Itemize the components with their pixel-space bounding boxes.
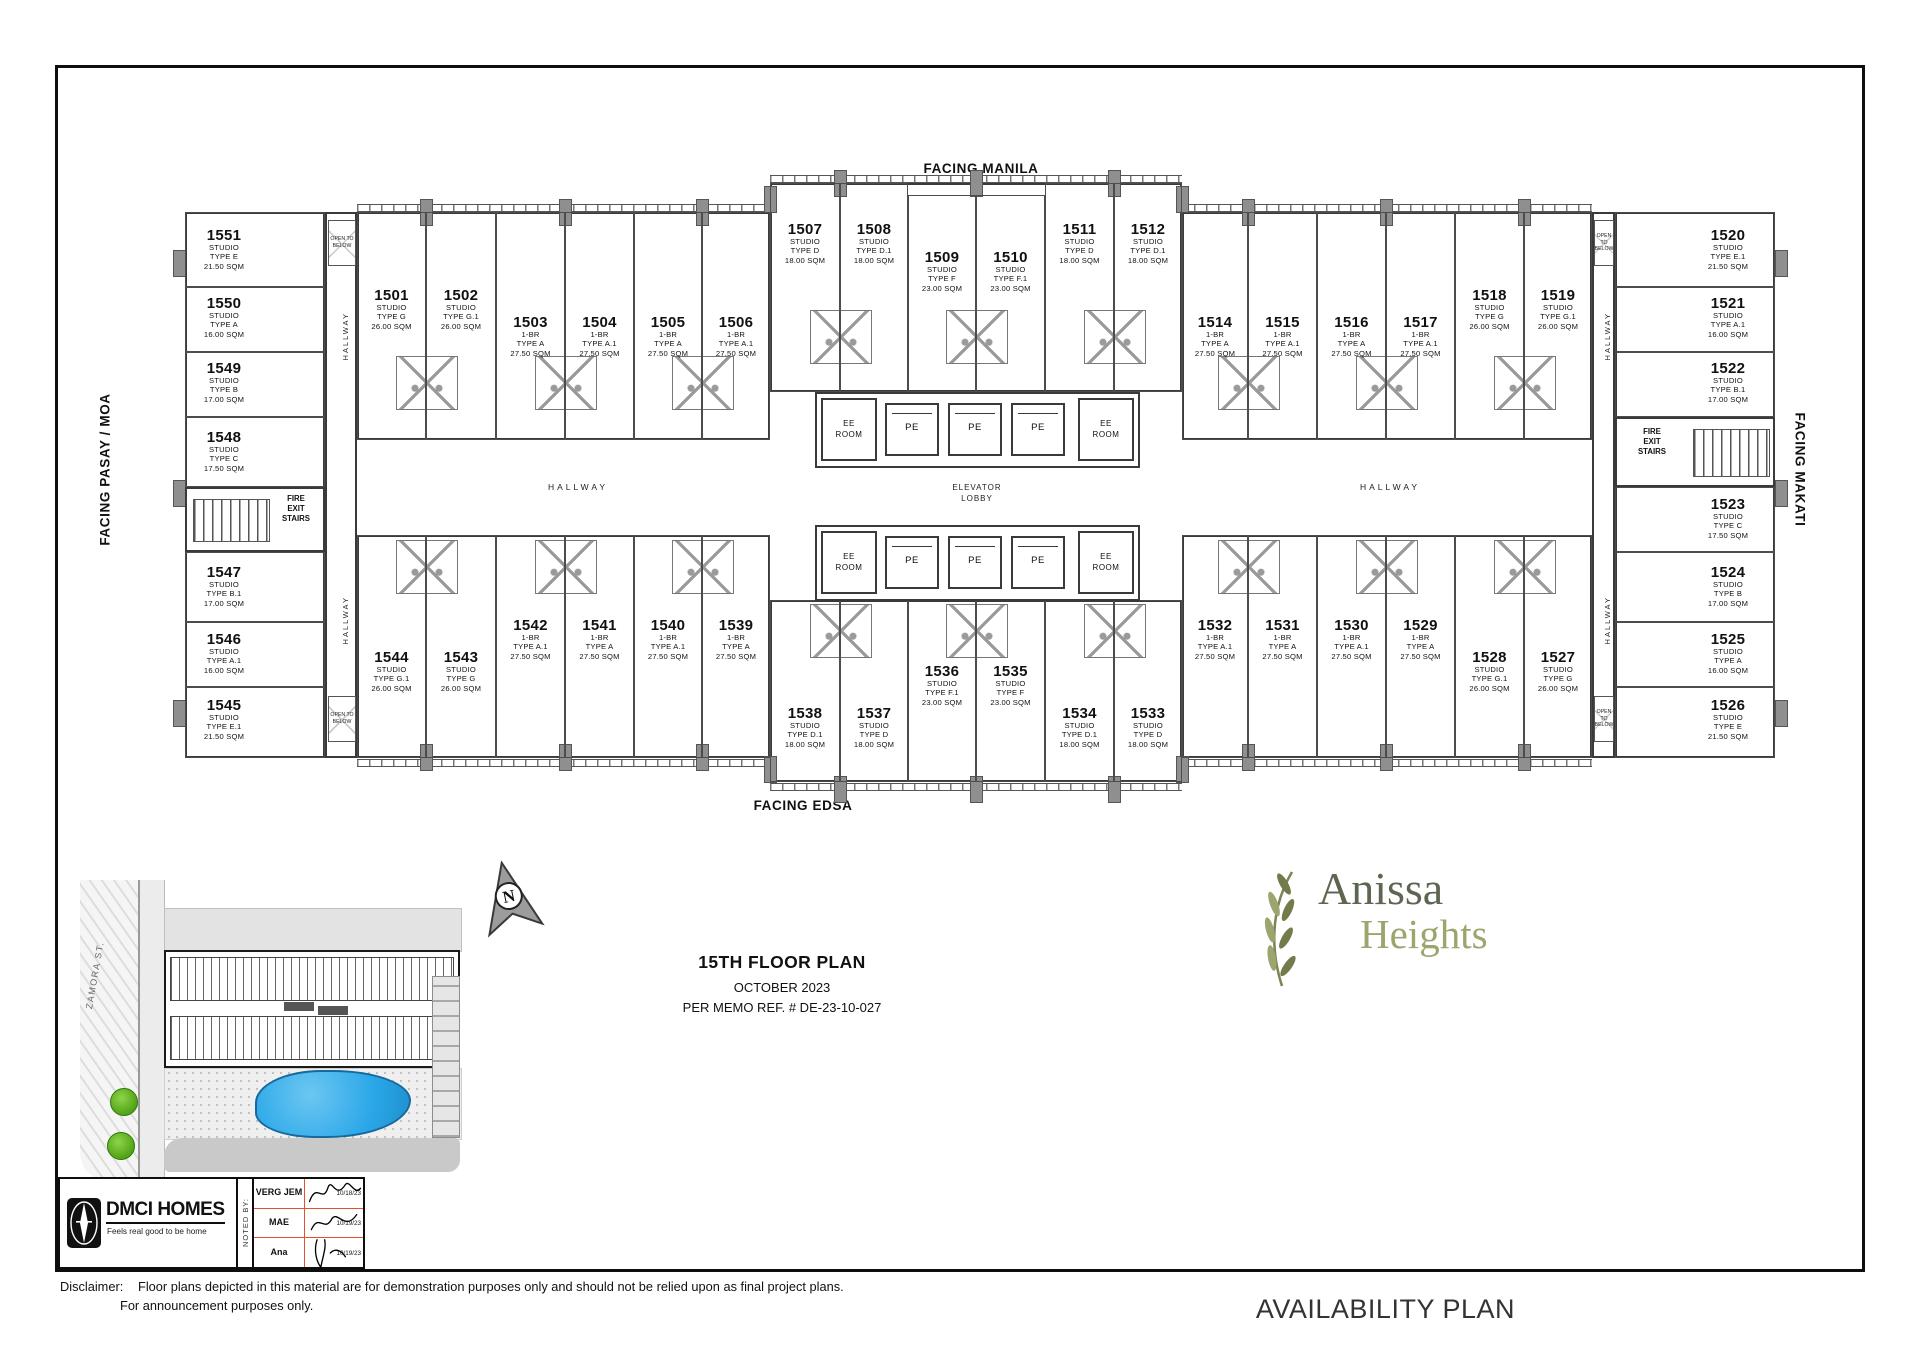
unit-label-1541: 15411-BRTYPE A27.50 SQM [561, 618, 639, 661]
unit-type-line: 18.00 SQM [1041, 256, 1119, 265]
unit-number: 1528 [1451, 650, 1529, 665]
unit-type-line: TYPE A.1 [561, 339, 639, 348]
unit-type-line: TYPE A [1382, 642, 1460, 651]
unit-type-line: 18.00 SQM [1109, 740, 1187, 749]
unit-type-line: 27.50 SQM [629, 349, 707, 358]
unit-label-1536: 1536STUDIOTYPE F.123.00 SQM [903, 664, 981, 707]
pe-label: PE [887, 422, 937, 433]
unit-type-line: 18.00 SQM [766, 256, 844, 265]
pe-label: PE [1013, 422, 1063, 433]
unit-label-1548: 1548STUDIOTYPE C17.50 SQM [185, 430, 263, 473]
unit-number: 1512 [1109, 222, 1187, 237]
unit-type-line: 26.00 SQM [353, 684, 431, 693]
title-block: DMCI HOMES Feels real good to be home NO… [58, 1177, 365, 1269]
unit-number: 1519 [1519, 288, 1597, 303]
passenger-elevator: PE [1011, 403, 1065, 456]
unit-number: 1547 [185, 565, 263, 580]
unit-type-line: TYPE D [835, 730, 913, 739]
unit-label-1505: 15051-BRTYPE A27.50 SQM [629, 315, 707, 358]
unit-type-line: TYPE A.1 [1689, 320, 1767, 329]
hallway-label: HALLWAY [1360, 482, 1420, 492]
open-to-below-label: OPEN TO BELOW [329, 697, 355, 741]
unit-number: 1542 [492, 618, 570, 633]
hallway-label: HALLWAY [548, 482, 608, 492]
unit-type-line: 18.00 SQM [766, 740, 844, 749]
unit-type-line: STUDIO [972, 265, 1050, 274]
unit-label-1526: 1526STUDIOTYPE E21.50 SQM [1689, 698, 1767, 741]
signatory-name: MAE [254, 1209, 305, 1238]
unit-type-line: TYPE A.1 [629, 642, 707, 651]
unit-type-line: STUDIO [1109, 237, 1187, 246]
open-to-below: OPEN TO BELOW [1594, 220, 1614, 266]
unit-type-line: STUDIO [766, 237, 844, 246]
unit-type-line: STUDIO [353, 303, 431, 312]
unit-label-1507: 1507STUDIOTYPE D18.00 SQM [766, 222, 844, 265]
unit-type-line: STUDIO [1689, 512, 1767, 521]
unit-type-line: TYPE F.1 [903, 688, 981, 697]
unit-type-line: 27.50 SQM [1313, 652, 1391, 661]
unit-type-line: TYPE A [1176, 339, 1254, 348]
unit-number: 1533 [1109, 706, 1187, 721]
unit-number: 1521 [1689, 296, 1767, 311]
ee-room: EEROOM [821, 531, 877, 594]
unit-type-line: TYPE A.1 [1313, 642, 1391, 651]
unit-type-line: STUDIO [185, 445, 263, 454]
unit-number: 1501 [353, 288, 431, 303]
unit-1533 [1114, 600, 1182, 782]
ee-room-label: EE [843, 419, 855, 429]
unit-type-line: 21.50 SQM [185, 732, 263, 741]
unit-type-line: 27.50 SQM [561, 349, 639, 358]
unit-type-line: 21.50 SQM [1689, 732, 1767, 741]
unit-type-line: TYPE D [1041, 246, 1119, 255]
unit-type-line: 27.50 SQM [1313, 349, 1391, 358]
ee-room-label: ROOM [1093, 563, 1120, 573]
unit-number: 1511 [1041, 222, 1119, 237]
unit-1509 [908, 195, 976, 392]
unit-type-line: TYPE D [1109, 730, 1187, 739]
unit-type-line: 27.50 SQM [629, 652, 707, 661]
unit-type-line: 16.00 SQM [185, 666, 263, 675]
unit-label-1509: 1509STUDIOTYPE F23.00 SQM [903, 250, 981, 293]
ee-room: EEROOM [821, 398, 877, 461]
unit-type-line: TYPE C [1689, 521, 1767, 530]
unit-type-line: STUDIO [1041, 721, 1119, 730]
unit-type-line: TYPE A.1 [1382, 339, 1460, 348]
unit-type-line: TYPE A [697, 642, 775, 651]
site-elevator-core [284, 1002, 314, 1011]
ee-room: EEROOM [1078, 398, 1134, 461]
signatory-date: 10/19/23 [336, 1250, 361, 1257]
unit-type-line: 23.00 SQM [972, 284, 1050, 293]
unit-type-line: 26.00 SQM [1451, 322, 1529, 331]
unit-label-1524: 1524STUDIOTYPE B17.00 SQM [1689, 565, 1767, 608]
unit-number: 1545 [185, 698, 263, 713]
unit-type-line: TYPE B.1 [185, 589, 263, 598]
unit-type-line: STUDIO [1689, 376, 1767, 385]
unit-number: 1516 [1313, 315, 1391, 330]
unit-label-1512: 1512STUDIOTYPE D.118.00 SQM [1109, 222, 1187, 265]
column-pier [970, 170, 983, 197]
memo-reference: PER MEMO REF. # DE-23-10-027 [632, 1000, 932, 1015]
availability-plan-label: AVAILABILITY PLAN [1200, 1294, 1515, 1325]
unit-type-line: TYPE A [1244, 642, 1322, 651]
unit-number: 1532 [1176, 618, 1254, 633]
leaf-branch-icon [1248, 866, 1318, 991]
column-pier [1775, 250, 1788, 277]
ee-room-label: ROOM [836, 430, 863, 440]
column-pier [1775, 480, 1788, 507]
unit-label-1522: 1522STUDIOTYPE B.117.00 SQM [1689, 361, 1767, 404]
unit-type-line: 17.00 SQM [1689, 395, 1767, 404]
unit-type-line: STUDIO [185, 243, 263, 252]
unit-type-line: 18.00 SQM [835, 256, 913, 265]
unit-label-1549: 1549STUDIOTYPE B17.00 SQM [185, 361, 263, 404]
disclaimer-label: Disclaimer: [60, 1279, 138, 1294]
availability-plan-page: FACING MANILA FACING EDSA FACING PASAY /… [0, 0, 1920, 1358]
elevator-door [955, 540, 995, 547]
unit-type-line: STUDIO [1689, 311, 1767, 320]
stairs-label-line: STAIRS [1622, 447, 1682, 457]
unit-type-line: TYPE D.1 [1109, 246, 1187, 255]
unit-type-line: 26.00 SQM [1451, 684, 1529, 693]
unit-type-line: 23.00 SQM [972, 698, 1050, 707]
unit-1527 [1524, 535, 1592, 758]
unit-type-line: 18.00 SQM [1109, 256, 1187, 265]
unit-type-line: STUDIO [1689, 580, 1767, 589]
unit-type-line: STUDIO [835, 237, 913, 246]
stairs-label-line: STAIRS [266, 514, 326, 524]
column-pier [173, 700, 186, 727]
unit-label-1529: 15291-BRTYPE A27.50 SQM [1382, 618, 1460, 661]
ee-room-label: EE [1100, 419, 1112, 429]
elevator-lobby-label: ELEVATORLOBBY [907, 483, 1047, 505]
unit-type-line: TYPE A.1 [1176, 642, 1254, 651]
unit-label-1514: 15141-BRTYPE A27.50 SQM [1176, 315, 1254, 358]
signatory-name: Ana [254, 1238, 305, 1267]
pe-label: PE [887, 555, 937, 566]
unit-type-line: STUDIO [1689, 713, 1767, 722]
unit-type-line: TYPE F [972, 688, 1050, 697]
unit-1510 [976, 195, 1045, 392]
dmci-logo-block: DMCI HOMES Feels real good to be home [60, 1179, 238, 1267]
tree-icon [107, 1132, 135, 1160]
brand-name-line2: Heights [1360, 914, 1488, 955]
unit-label-1550: 1550STUDIOTYPE A16.00 SQM [185, 296, 263, 339]
unit-type-line: TYPE B [1689, 589, 1767, 598]
noted-by-strip: NOTED BY: [238, 1179, 254, 1267]
unit-type-line: STUDIO [1519, 303, 1597, 312]
unit-type-line: TYPE A [629, 339, 707, 348]
unit-type-line: TYPE G [353, 312, 431, 321]
unit-number: 1514 [1176, 315, 1254, 330]
sheet-title: 15TH FLOOR PLAN OCTOBER 2023 PER MEMO RE… [632, 952, 932, 1015]
unit-type-line: STUDIO [903, 265, 981, 274]
unit-type-line: TYPE G [422, 674, 500, 683]
dmci-brand-name: DMCI HOMES [106, 1199, 225, 1224]
unit-label-1518: 1518STUDIOTYPE G26.00 SQM [1451, 288, 1529, 331]
open-to-below: OPEN TO BELOW [328, 220, 356, 266]
pe-label: PE [1013, 555, 1063, 566]
unit-type-line: 1-BR [629, 330, 707, 339]
unit-type-line: 1-BR [1176, 633, 1254, 642]
passenger-elevator: PE [948, 536, 1002, 589]
unit-1528 [1455, 535, 1524, 758]
unit-number: 1535 [972, 664, 1050, 679]
unit-type-line: 17.50 SQM [185, 464, 263, 473]
signature-cell: 10/18/23 [305, 1179, 363, 1208]
stairs-label-line: FIRE [266, 494, 326, 504]
ee-room: EEROOM [1078, 531, 1134, 594]
unit-type-line: TYPE G.1 [1519, 312, 1597, 321]
unit-type-line: 1-BR [1313, 633, 1391, 642]
unit-type-line: STUDIO [835, 721, 913, 730]
unit-type-line: 1-BR [561, 633, 639, 642]
pe-label: PE [950, 422, 1000, 433]
unit-type-line: STUDIO [422, 665, 500, 674]
unit-1537 [840, 600, 908, 782]
open-to-below-label: OPEN TO BELOW [1595, 221, 1613, 265]
unit-type-line: 26.00 SQM [422, 684, 500, 693]
unit-label-1503: 15031-BRTYPE A27.50 SQM [492, 315, 570, 358]
column-pier [173, 250, 186, 277]
unit-type-line: TYPE G [1451, 312, 1529, 321]
elevator-door [892, 540, 932, 547]
unit-type-line: TYPE D.1 [835, 246, 913, 255]
elevator-door [1018, 407, 1058, 414]
unit-number: 1523 [1689, 497, 1767, 512]
site-driveway [164, 908, 462, 952]
unit-label-1510: 1510STUDIOTYPE F.123.00 SQM [972, 250, 1050, 293]
unit-type-line: 16.00 SQM [185, 330, 263, 339]
signatory-row: MAE10/19/23 [254, 1209, 363, 1239]
open-to-below: OPEN TO BELOW [328, 696, 356, 742]
unit-type-line: TYPE C [185, 454, 263, 463]
unit-type-line: STUDIO [1689, 647, 1767, 656]
unit-label-1538: 1538STUDIOTYPE D.118.00 SQM [766, 706, 844, 749]
unit-type-line: TYPE G.1 [1451, 674, 1529, 683]
ee-room-label: ROOM [1093, 430, 1120, 440]
unit-label-1515: 15151-BRTYPE A.127.50 SQM [1244, 315, 1322, 358]
unit-label-1508: 1508STUDIOTYPE D.118.00 SQM [835, 222, 913, 265]
unit-type-line: 1-BR [1382, 633, 1460, 642]
unit-type-line: 1-BR [492, 633, 570, 642]
unit-number: 1549 [185, 361, 263, 376]
signatory-row: VERG JEM10/18/23 [254, 1179, 363, 1209]
site-unit-band [170, 957, 454, 1001]
unit-number: 1541 [561, 618, 639, 633]
unit-type-line: TYPE A [492, 339, 570, 348]
unit-type-line: TYPE F.1 [972, 274, 1050, 283]
open-to-below-label: OPEN TO BELOW [1595, 697, 1613, 741]
unit-type-line: STUDIO [1451, 665, 1529, 674]
unit-type-line: 1-BR [629, 633, 707, 642]
unit-type-line: STUDIO [185, 376, 263, 385]
unit-type-line: 23.00 SQM [903, 698, 981, 707]
unit-type-line: TYPE G.1 [353, 674, 431, 683]
unit-number: 1527 [1519, 650, 1597, 665]
plan-month: OCTOBER 2023 [632, 980, 932, 995]
unit-label-1545: 1545STUDIOTYPE E.121.50 SQM [185, 698, 263, 741]
unit-label-1506: 15061-BRTYPE A.127.50 SQM [697, 315, 775, 358]
unit-type-line: STUDIO [1519, 665, 1597, 674]
unit-1507 [770, 183, 840, 392]
unit-label-1520: 1520STUDIOTYPE E.121.50 SQM [1689, 228, 1767, 271]
unit-1544 [357, 535, 426, 758]
unit-type-line: TYPE A [561, 642, 639, 651]
unit-number: 1550 [185, 296, 263, 311]
unit-number: 1522 [1689, 361, 1767, 376]
unit-type-line: TYPE A [1313, 339, 1391, 348]
unit-label-1551: 1551STUDIOTYPE E21.50 SQM [185, 228, 263, 271]
unit-type-line: TYPE F [903, 274, 981, 283]
dmci-tagline: Feels real good to be home [107, 1227, 207, 1236]
unit-type-line: 17.00 SQM [185, 395, 263, 404]
unit-label-1516: 15161-BRTYPE A27.50 SQM [1313, 315, 1391, 358]
unit-type-line: TYPE B.1 [1689, 385, 1767, 394]
unit-type-line: 27.50 SQM [561, 652, 639, 661]
unit-number: 1508 [835, 222, 913, 237]
unit-number: 1530 [1313, 618, 1391, 633]
unit-1508 [840, 183, 908, 392]
unit-type-line: 26.00 SQM [1519, 684, 1597, 693]
unit-number: 1540 [629, 618, 707, 633]
unit-1511 [1045, 183, 1114, 392]
unit-type-line: 1-BR [1244, 633, 1322, 642]
unit-label-1539: 15391-BRTYPE A27.50 SQM [697, 618, 775, 661]
unit-type-line: TYPE A.1 [492, 642, 570, 651]
unit-type-line: 27.50 SQM [1244, 652, 1322, 661]
unit-label-1521: 1521STUDIOTYPE A.116.00 SQM [1689, 296, 1767, 339]
unit-number: 1531 [1244, 618, 1322, 633]
disclaimer-line2: For announcement purposes only. [60, 1298, 844, 1313]
signatory-table: VERG JEM10/18/23MAE10/19/23Ana10/19/23 [254, 1179, 363, 1267]
site-path [164, 1138, 460, 1172]
disclaimer-line1: Floor plans depicted in this material ar… [138, 1279, 844, 1294]
unit-number: 1537 [835, 706, 913, 721]
unit-type-line: STUDIO [1109, 721, 1187, 730]
tree-icon [110, 1088, 138, 1116]
hallway-label-vertical: HALLWAY [1603, 596, 1612, 644]
unit-number: 1544 [353, 650, 431, 665]
unit-type-line: 1-BR [1244, 330, 1322, 339]
unit-label-1547: 1547STUDIOTYPE B.117.00 SQM [185, 565, 263, 608]
unit-type-line: 17.00 SQM [185, 599, 263, 608]
unit-type-line: TYPE A [185, 320, 263, 329]
unit-type-line: 26.00 SQM [353, 322, 431, 331]
column-pier [173, 480, 186, 507]
stairs-label-line: FIRE [1622, 427, 1682, 437]
open-to-below: OPEN TO BELOW [1594, 696, 1614, 742]
elevator-door [1018, 540, 1058, 547]
unit-number: 1506 [697, 315, 775, 330]
unit-label-1517: 15171-BRTYPE A.127.50 SQM [1382, 315, 1460, 358]
unit-number: 1504 [561, 315, 639, 330]
disclaimer: Disclaimer:Floor plans depicted in this … [60, 1279, 844, 1313]
ee-room-label: ROOM [836, 563, 863, 573]
unit-type-line: 1-BR [697, 633, 775, 642]
unit-number: 1518 [1451, 288, 1529, 303]
unit-number: 1551 [185, 228, 263, 243]
stair-treads [1693, 429, 1770, 477]
unit-number: 1520 [1689, 228, 1767, 243]
unit-type-line: STUDIO [766, 721, 844, 730]
unit-type-line: TYPE A [1689, 656, 1767, 665]
unit-type-line: 1-BR [697, 330, 775, 339]
unit-type-line: TYPE G.1 [422, 312, 500, 321]
unit-type-line: STUDIO [903, 679, 981, 688]
unit-label-1523: 1523STUDIOTYPE C17.50 SQM [1689, 497, 1767, 540]
unit-number: 1525 [1689, 632, 1767, 647]
unit-type-line: 27.50 SQM [1176, 349, 1254, 358]
signature-cell: 10/19/23 [305, 1238, 363, 1267]
noted-by-label: NOTED BY: [241, 1198, 250, 1247]
unit-number: 1502 [422, 288, 500, 303]
unit-type-line: 26.00 SQM [422, 322, 500, 331]
unit-type-line: TYPE D.1 [766, 730, 844, 739]
lobby-label-line: LOBBY [907, 494, 1047, 505]
unit-number: 1548 [185, 430, 263, 445]
hallway-label-vertical: HALLWAY [1603, 312, 1612, 360]
unit-type-line: STUDIO [185, 647, 263, 656]
unit-type-line: 1-BR [492, 330, 570, 339]
passenger-elevator: PE [885, 536, 939, 589]
unit-type-line: 21.50 SQM [1689, 262, 1767, 271]
unit-label-1537: 1537STUDIOTYPE D18.00 SQM [835, 706, 913, 749]
unit-number: 1536 [903, 664, 981, 679]
unit-type-line: 26.00 SQM [1519, 322, 1597, 331]
unit-type-line: 1-BR [1382, 330, 1460, 339]
unit-number: 1543 [422, 650, 500, 665]
fire-exit-stairs-label: FIREEXITSTAIRS [266, 494, 326, 524]
signatory-row: Ana10/19/23 [254, 1238, 363, 1267]
unit-type-line: 21.50 SQM [185, 262, 263, 271]
unit-type-line: 27.50 SQM [1176, 652, 1254, 661]
site-key-plan: ZAMORA ST. [80, 880, 470, 1182]
elevator-door [892, 407, 932, 414]
unit-label-1502: 1502STUDIOTYPE G.126.00 SQM [422, 288, 500, 331]
unit-type-line: 16.00 SQM [1689, 666, 1767, 675]
unit-label-1534: 1534STUDIOTYPE D.118.00 SQM [1041, 706, 1119, 749]
pe-label: PE [950, 555, 1000, 566]
unit-type-line: STUDIO [185, 311, 263, 320]
unit-type-line: TYPE E [185, 252, 263, 261]
unit-type-line: STUDIO [972, 679, 1050, 688]
unit-type-line: 16.00 SQM [1689, 330, 1767, 339]
unit-label-1543: 1543STUDIOTYPE G26.00 SQM [422, 650, 500, 693]
unit-label-1525: 1525STUDIOTYPE A16.00 SQM [1689, 632, 1767, 675]
unit-number: 1507 [766, 222, 844, 237]
unit-number: 1517 [1382, 315, 1460, 330]
ee-room-label: EE [1100, 552, 1112, 562]
unit-type-line: STUDIO [353, 665, 431, 674]
unit-label-1528: 1528STUDIOTYPE G.126.00 SQM [1451, 650, 1529, 693]
unit-number: 1546 [185, 632, 263, 647]
unit-number: 1510 [972, 250, 1050, 265]
unit-number: 1529 [1382, 618, 1460, 633]
unit-type-line: STUDIO [1041, 237, 1119, 246]
unit-type-line: 27.50 SQM [492, 652, 570, 661]
unit-number: 1526 [1689, 698, 1767, 713]
signatory-date: 10/19/23 [336, 1220, 361, 1227]
unit-type-line: 18.00 SQM [1041, 740, 1119, 749]
unit-type-line: 17.00 SQM [1689, 599, 1767, 608]
elevator-door [955, 407, 995, 414]
unit-label-1533: 1533STUDIOTYPE D18.00 SQM [1109, 706, 1187, 749]
site-parking-strip [432, 976, 460, 1138]
unit-number: 1538 [766, 706, 844, 721]
unit-type-line: STUDIO [185, 713, 263, 722]
